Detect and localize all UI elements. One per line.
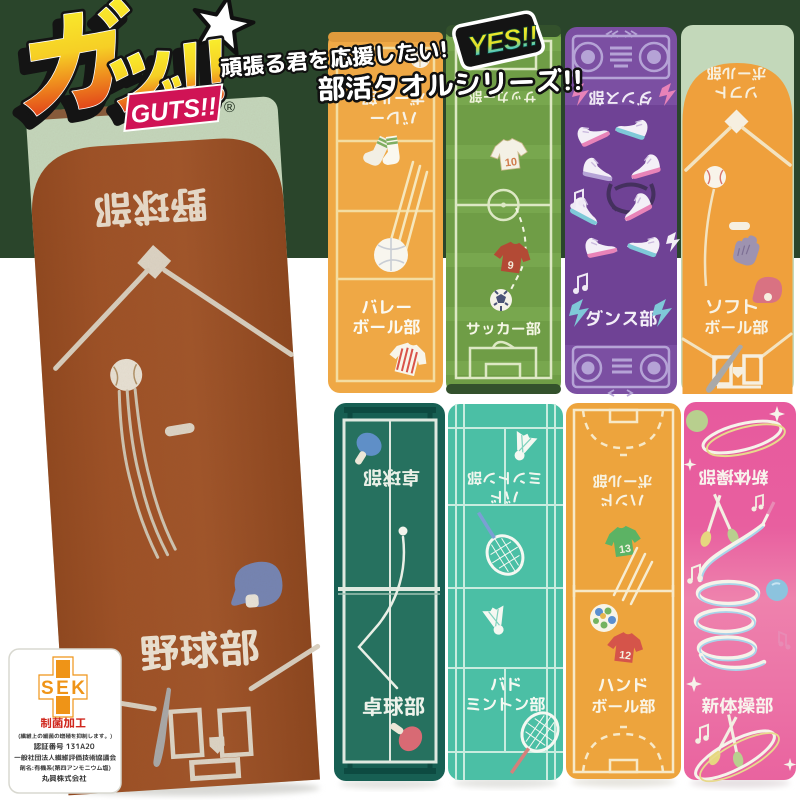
svg-text:10: 10 — [504, 156, 518, 169]
svg-text:13: 13 — [618, 543, 631, 557]
svg-text:SEK: SEK — [41, 678, 85, 699]
svg-text:®: ® — [224, 99, 235, 116]
svg-text:12: 12 — [618, 649, 631, 662]
